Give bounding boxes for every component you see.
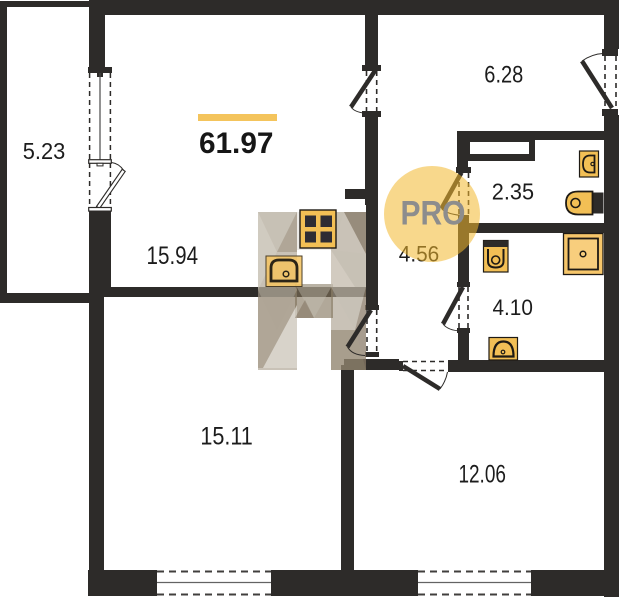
- svg-text:15.11: 15.11: [200, 423, 253, 451]
- svg-text:6.28: 6.28: [484, 61, 523, 88]
- svg-text:PRO: PRO: [401, 195, 466, 233]
- svg-text:12.06: 12.06: [458, 461, 506, 489]
- svg-text:15.94: 15.94: [147, 242, 199, 270]
- svg-text:4.10: 4.10: [493, 295, 533, 320]
- svg-text:2.35: 2.35: [492, 179, 534, 205]
- svg-text:61.97: 61.97: [199, 127, 274, 160]
- svg-text:5.23: 5.23: [23, 138, 66, 164]
